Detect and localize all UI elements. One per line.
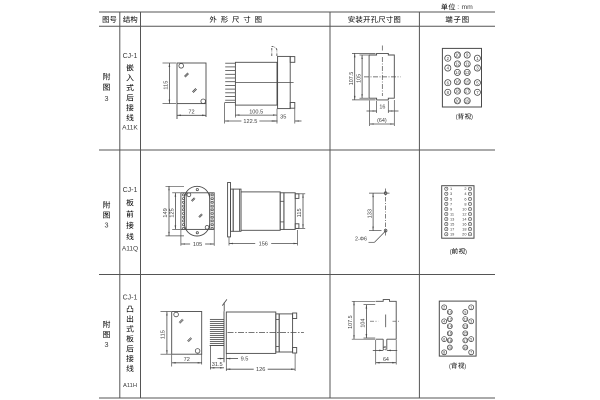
svg-text:11: 11: [465, 61, 470, 66]
svg-text:9: 9: [464, 310, 466, 314]
svg-text:100.5: 100.5: [249, 109, 263, 115]
svg-text:72: 72: [184, 357, 190, 363]
svg-text:122.5: 122.5: [243, 119, 257, 125]
svg-text:18: 18: [455, 89, 460, 94]
svg-text:(64): (64): [377, 118, 387, 124]
svg-text:149: 149: [163, 208, 169, 217]
svg-text:19: 19: [465, 98, 470, 103]
svg-text:115: 115: [161, 330, 167, 339]
svg-text:mm: mm: [462, 4, 474, 11]
svg-text:): ): [465, 248, 467, 255]
svg-text:64: 64: [383, 357, 389, 363]
svg-text:19: 19: [463, 346, 467, 350]
svg-text:7: 7: [470, 351, 472, 355]
svg-text:): ): [471, 114, 473, 121]
svg-text:CJ-1: CJ-1: [123, 187, 138, 194]
svg-text:9.5: 9.5: [241, 356, 249, 362]
svg-text:A11K: A11K: [122, 124, 138, 131]
svg-text:115: 115: [297, 208, 303, 217]
svg-text:156: 156: [259, 241, 268, 247]
svg-text:14: 14: [448, 325, 452, 329]
svg-text:3: 3: [105, 94, 109, 103]
svg-text:10: 10: [455, 53, 460, 58]
svg-text:16: 16: [382, 345, 387, 351]
svg-text:15: 15: [465, 79, 470, 84]
svg-text:3: 3: [470, 320, 472, 324]
svg-text:1: 1: [470, 306, 472, 310]
svg-text:2-Φ6: 2-Φ6: [355, 237, 367, 243]
svg-text:15: 15: [463, 332, 467, 336]
svg-text:18: 18: [448, 339, 452, 343]
svg-text:14: 14: [455, 70, 460, 75]
svg-text:115: 115: [164, 81, 170, 90]
svg-text:8: 8: [443, 351, 445, 355]
svg-text:CJ-1: CJ-1: [123, 53, 138, 60]
svg-text::: :: [457, 4, 459, 11]
svg-text:72: 72: [188, 110, 194, 116]
svg-text:CJ-1: CJ-1: [123, 294, 138, 301]
svg-text:16: 16: [448, 332, 452, 336]
svg-text:12: 12: [448, 318, 452, 322]
svg-text:11: 11: [463, 318, 467, 322]
svg-text:2: 2: [443, 306, 445, 310]
svg-text:16: 16: [379, 105, 385, 111]
svg-text:16: 16: [455, 79, 460, 84]
svg-text:A11H: A11H: [123, 383, 137, 389]
svg-text:17: 17: [465, 89, 470, 94]
svg-text:105: 105: [193, 242, 202, 248]
svg-text:13: 13: [463, 325, 467, 329]
svg-text:107.5: 107.5: [348, 315, 354, 329]
svg-text:4: 4: [443, 320, 445, 324]
svg-text:107.5: 107.5: [349, 72, 355, 86]
svg-text:126: 126: [256, 367, 265, 373]
svg-text:17: 17: [463, 339, 467, 343]
svg-text:105: 105: [356, 74, 362, 83]
svg-text:104: 104: [361, 319, 367, 328]
svg-text:A11Q: A11Q: [122, 245, 138, 252]
svg-text:13: 13: [465, 70, 470, 75]
svg-text:125: 125: [170, 208, 176, 217]
svg-text:133: 133: [367, 209, 373, 218]
svg-text:6: 6: [443, 338, 445, 342]
svg-text:3: 3: [105, 340, 109, 349]
svg-text:10: 10: [448, 310, 452, 314]
svg-text:20: 20: [455, 98, 460, 103]
svg-text:12: 12: [455, 61, 460, 66]
svg-text:35: 35: [280, 114, 286, 120]
svg-text:3: 3: [105, 220, 109, 229]
svg-text:5: 5: [470, 338, 472, 342]
svg-text:): ): [464, 363, 466, 370]
svg-text:19: 19: [450, 232, 454, 237]
svg-text:31.5: 31.5: [212, 362, 223, 368]
svg-text:20: 20: [448, 346, 452, 350]
